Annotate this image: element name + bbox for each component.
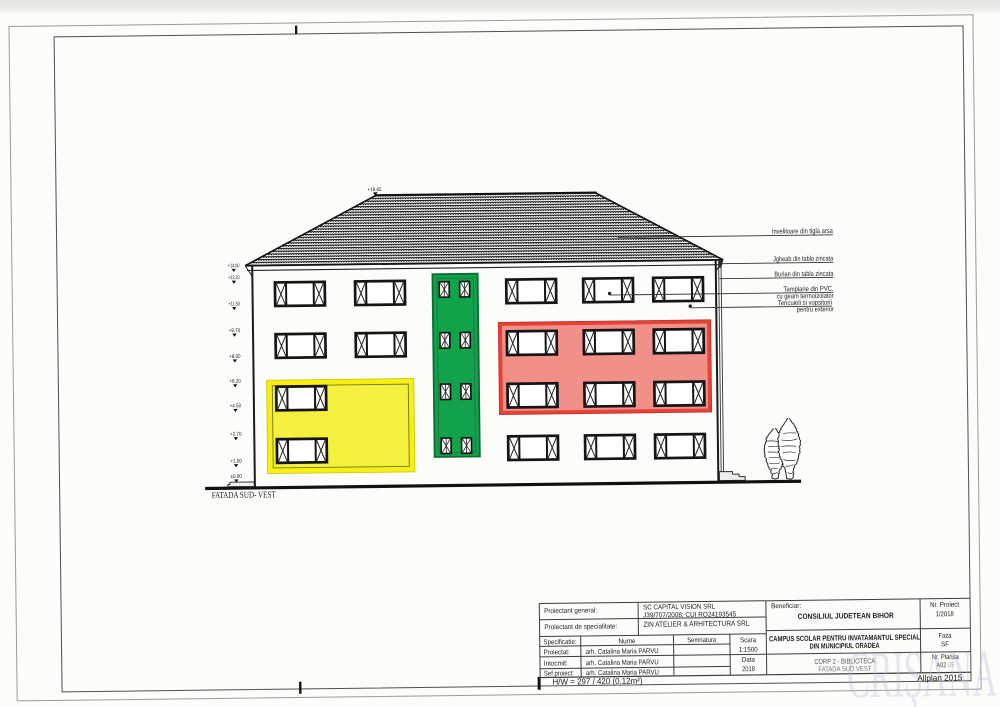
- svg-text:Semnatura: Semnatura: [687, 637, 716, 644]
- svg-text:1:1500: 1:1500: [739, 647, 758, 654]
- svg-text:+18.65: +18.65: [367, 187, 381, 193]
- svg-text:CRIŞANA: CRIŞANA: [847, 636, 998, 707]
- svg-text:Proiectant general:: Proiectant general:: [544, 607, 597, 615]
- svg-text:H/W = 297 / 420 (0.12m²): H/W = 297 / 420 (0.12m²): [552, 676, 642, 687]
- svg-text:+2.70: +2.70: [230, 432, 242, 438]
- svg-text:FATADA SUD- VEST: FATADA SUD- VEST: [212, 489, 277, 500]
- svg-text:arh. Catalina Maria PARVU: arh. Catalina Maria PARVU: [586, 648, 659, 656]
- svg-text:Data: Data: [742, 657, 755, 664]
- svg-text:±0.00: ±0.00: [230, 474, 242, 480]
- svg-text:Scara: Scara: [740, 637, 756, 644]
- svg-text:Proiectant de specialitate:: Proiectant de specialitate:: [544, 623, 617, 631]
- svg-text:arh. Catalina Maria PARVU: arh. Catalina Maria PARVU: [586, 659, 659, 667]
- svg-text:+4.50: +4.50: [230, 403, 242, 409]
- svg-text:+8.00: +8.00: [229, 354, 241, 360]
- svg-text:Proiectat:: Proiectat:: [544, 649, 570, 656]
- svg-text:Jgheab din tabla zincata: Jgheab din tabla zincata: [773, 256, 833, 264]
- svg-text:Intocmit:: Intocmit:: [544, 660, 568, 667]
- svg-text:+6.20: +6.20: [229, 379, 241, 385]
- svg-text:CONSILIUL JUDETEAN BIHOR: CONSILIUL JUDETEAN BIHOR: [798, 611, 895, 621]
- svg-text:SC CAPITAL VISION SRL: SC CAPITAL VISION SRL: [643, 604, 715, 612]
- svg-text:Specificatie:: Specificatie:: [543, 639, 576, 646]
- svg-text:Nr. Proiect: Nr. Proiect: [930, 602, 959, 609]
- svg-text:Invelitoare din tigla arsa: Invelitoare din tigla arsa: [772, 228, 833, 236]
- svg-text:+11.50: +11.50: [228, 301, 240, 307]
- svg-text:1/2018: 1/2018: [936, 611, 954, 618]
- svg-text:+1.00: +1.00: [230, 459, 242, 465]
- svg-text:Burlan din tabla zincata: Burlan din tabla zincata: [774, 271, 833, 279]
- svg-text:Nume: Nume: [618, 638, 635, 645]
- svg-text:2018: 2018: [742, 666, 755, 673]
- svg-text:+14.00: +14.00: [228, 263, 240, 269]
- svg-text:ZIN ATELIER & ARHITECTURA SRL: ZIN ATELIER & ARHITECTURA SRL: [643, 619, 749, 629]
- svg-text:pentru exterior: pentru exterior: [797, 306, 835, 313]
- svg-text:+13.20: +13.20: [228, 275, 240, 281]
- svg-text:Beneficiar:: Beneficiar:: [771, 603, 801, 610]
- svg-text:+9.70: +9.70: [229, 328, 241, 334]
- svg-text:Allplan 2015: Allplan 2015: [917, 672, 962, 683]
